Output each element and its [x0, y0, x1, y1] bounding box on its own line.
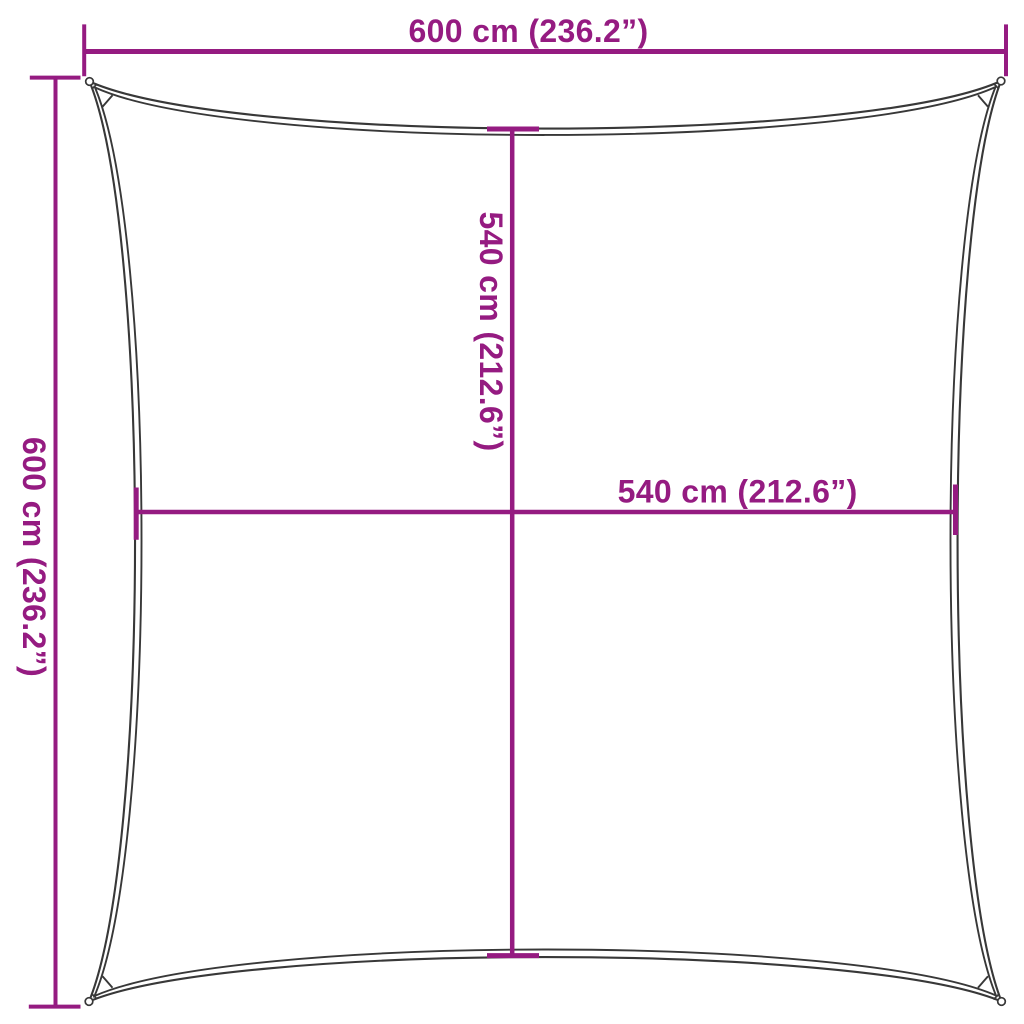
svg-text:600 cm (236.2”): 600 cm (236.2”) [16, 437, 52, 677]
svg-text:540 cm (212.6”): 540 cm (212.6”) [473, 211, 509, 451]
svg-text:540 cm (212.6”): 540 cm (212.6”) [618, 474, 858, 510]
svg-text:600 cm (236.2”): 600 cm (236.2”) [408, 13, 648, 49]
